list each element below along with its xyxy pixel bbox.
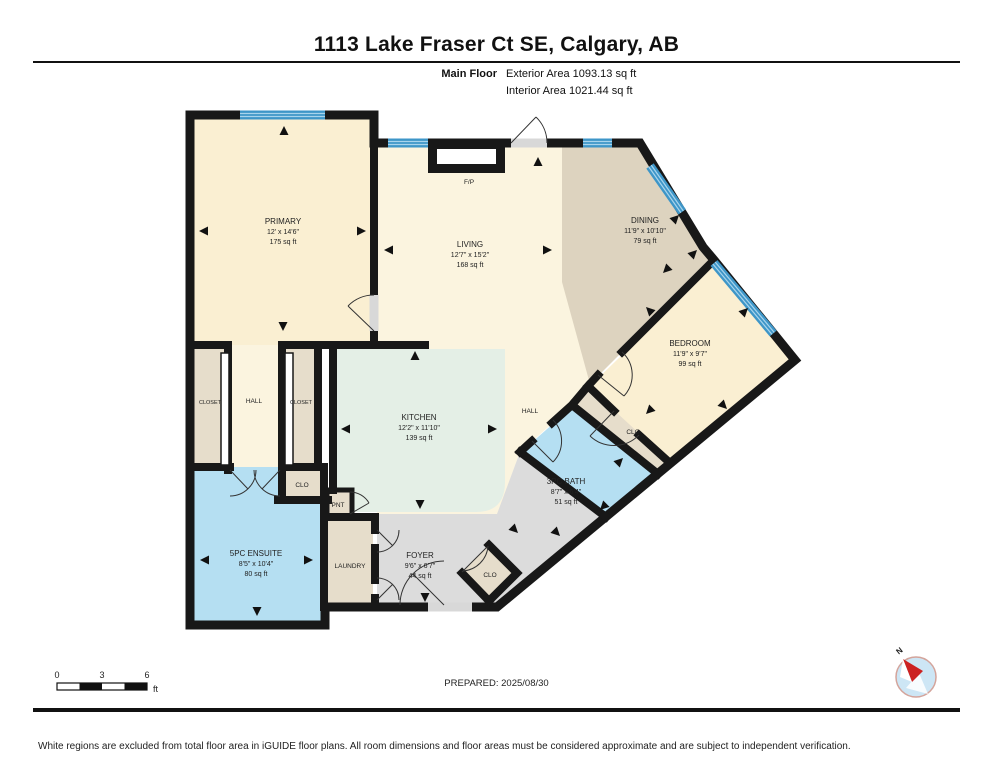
- label-closet-right: CLOSET: [290, 400, 313, 406]
- interior-area-text: Interior Area 1021.44 sq ft: [506, 85, 633, 97]
- label-bedroom-area: 99 sq ft: [679, 361, 702, 368]
- label-primary-dims: 12' x 14'6": [267, 229, 300, 236]
- label-primary-area: 175 sq ft: [270, 239, 297, 246]
- room-hall-left: [228, 345, 282, 470]
- floor-plan-page: 1113 Lake Fraser Ct SE, Calgary, AB Main…: [0, 0, 993, 768]
- label-fireplace: F/P: [464, 179, 474, 186]
- window-primary: [240, 111, 325, 120]
- label-living-area: 168 sq ft: [457, 262, 484, 269]
- label-living-name: LIVING: [457, 240, 483, 249]
- label-foyer-name: FOYER: [406, 551, 434, 560]
- window-living-left: [388, 139, 428, 148]
- title-divider: [33, 61, 960, 63]
- prepared-date: PREPARED: 2025/08/30: [0, 678, 993, 689]
- label-primary-name: PRIMARY: [265, 217, 302, 226]
- fireplace: [428, 139, 505, 173]
- floor-label: Main Floor: [0, 68, 497, 80]
- label-kitchen-area: 139 sq ft: [406, 435, 433, 442]
- compass-icon: N: [894, 646, 936, 697]
- label-hall-left: HALL: [246, 398, 263, 405]
- label-foyer-area: 44 sq ft: [409, 573, 432, 580]
- room-laundry: [328, 517, 373, 605]
- compass-north-label: N: [894, 646, 904, 657]
- label-bath-name: 3PC BATH: [547, 477, 586, 486]
- label-dining-dims: 11'9" x 10'10": [624, 228, 666, 235]
- label-closet-left: CLOSET: [199, 400, 222, 406]
- label-foyer-dims: 9'6" x 6'7": [405, 563, 436, 570]
- label-kitchen-dims: 12'2" x 11'10": [398, 425, 440, 432]
- label-bath-area: 51 sq ft: [555, 499, 578, 506]
- label-living-dims: 12'7" x 15'2": [451, 252, 490, 259]
- label-dining-area: 79 sq ft: [634, 238, 657, 245]
- label-ensuite-dims: 8'5" x 10'4": [239, 561, 274, 568]
- label-kitchen-name: KITCHEN: [401, 413, 436, 422]
- label-laundry: LAUNDRY: [335, 563, 367, 570]
- label-bath-dims: 8'7" x 6'4": [551, 489, 582, 496]
- footer-disclaimer: White regions are excluded from total fl…: [38, 741, 958, 752]
- floor-plan-canvas: PRIMARY 12' x 14'6" 175 sq ft LIVING 12'…: [0, 0, 993, 768]
- label-clo-foyer: CLO: [483, 572, 496, 579]
- label-clo-bedroom: CLO: [626, 429, 639, 436]
- label-dining-name: DINING: [631, 216, 659, 225]
- page-title: 1113 Lake Fraser Ct SE, Calgary, AB: [0, 33, 993, 57]
- label-ensuite-name: 5PC ENSUITE: [230, 549, 282, 558]
- label-clo-hall: CLO: [295, 482, 308, 489]
- exterior-area-text: Exterior Area 1093.13 sq ft: [506, 68, 636, 80]
- label-ensuite-area: 80 sq ft: [245, 571, 268, 578]
- window-living-right: [583, 139, 612, 148]
- label-bedroom-dims: 11'9" x 9'7": [673, 351, 707, 358]
- footer-divider: [33, 708, 960, 712]
- label-bedroom-name: BEDROOM: [669, 339, 711, 348]
- label-hall-right: HALL: [522, 408, 539, 415]
- label-pantry: PNT: [332, 502, 345, 509]
